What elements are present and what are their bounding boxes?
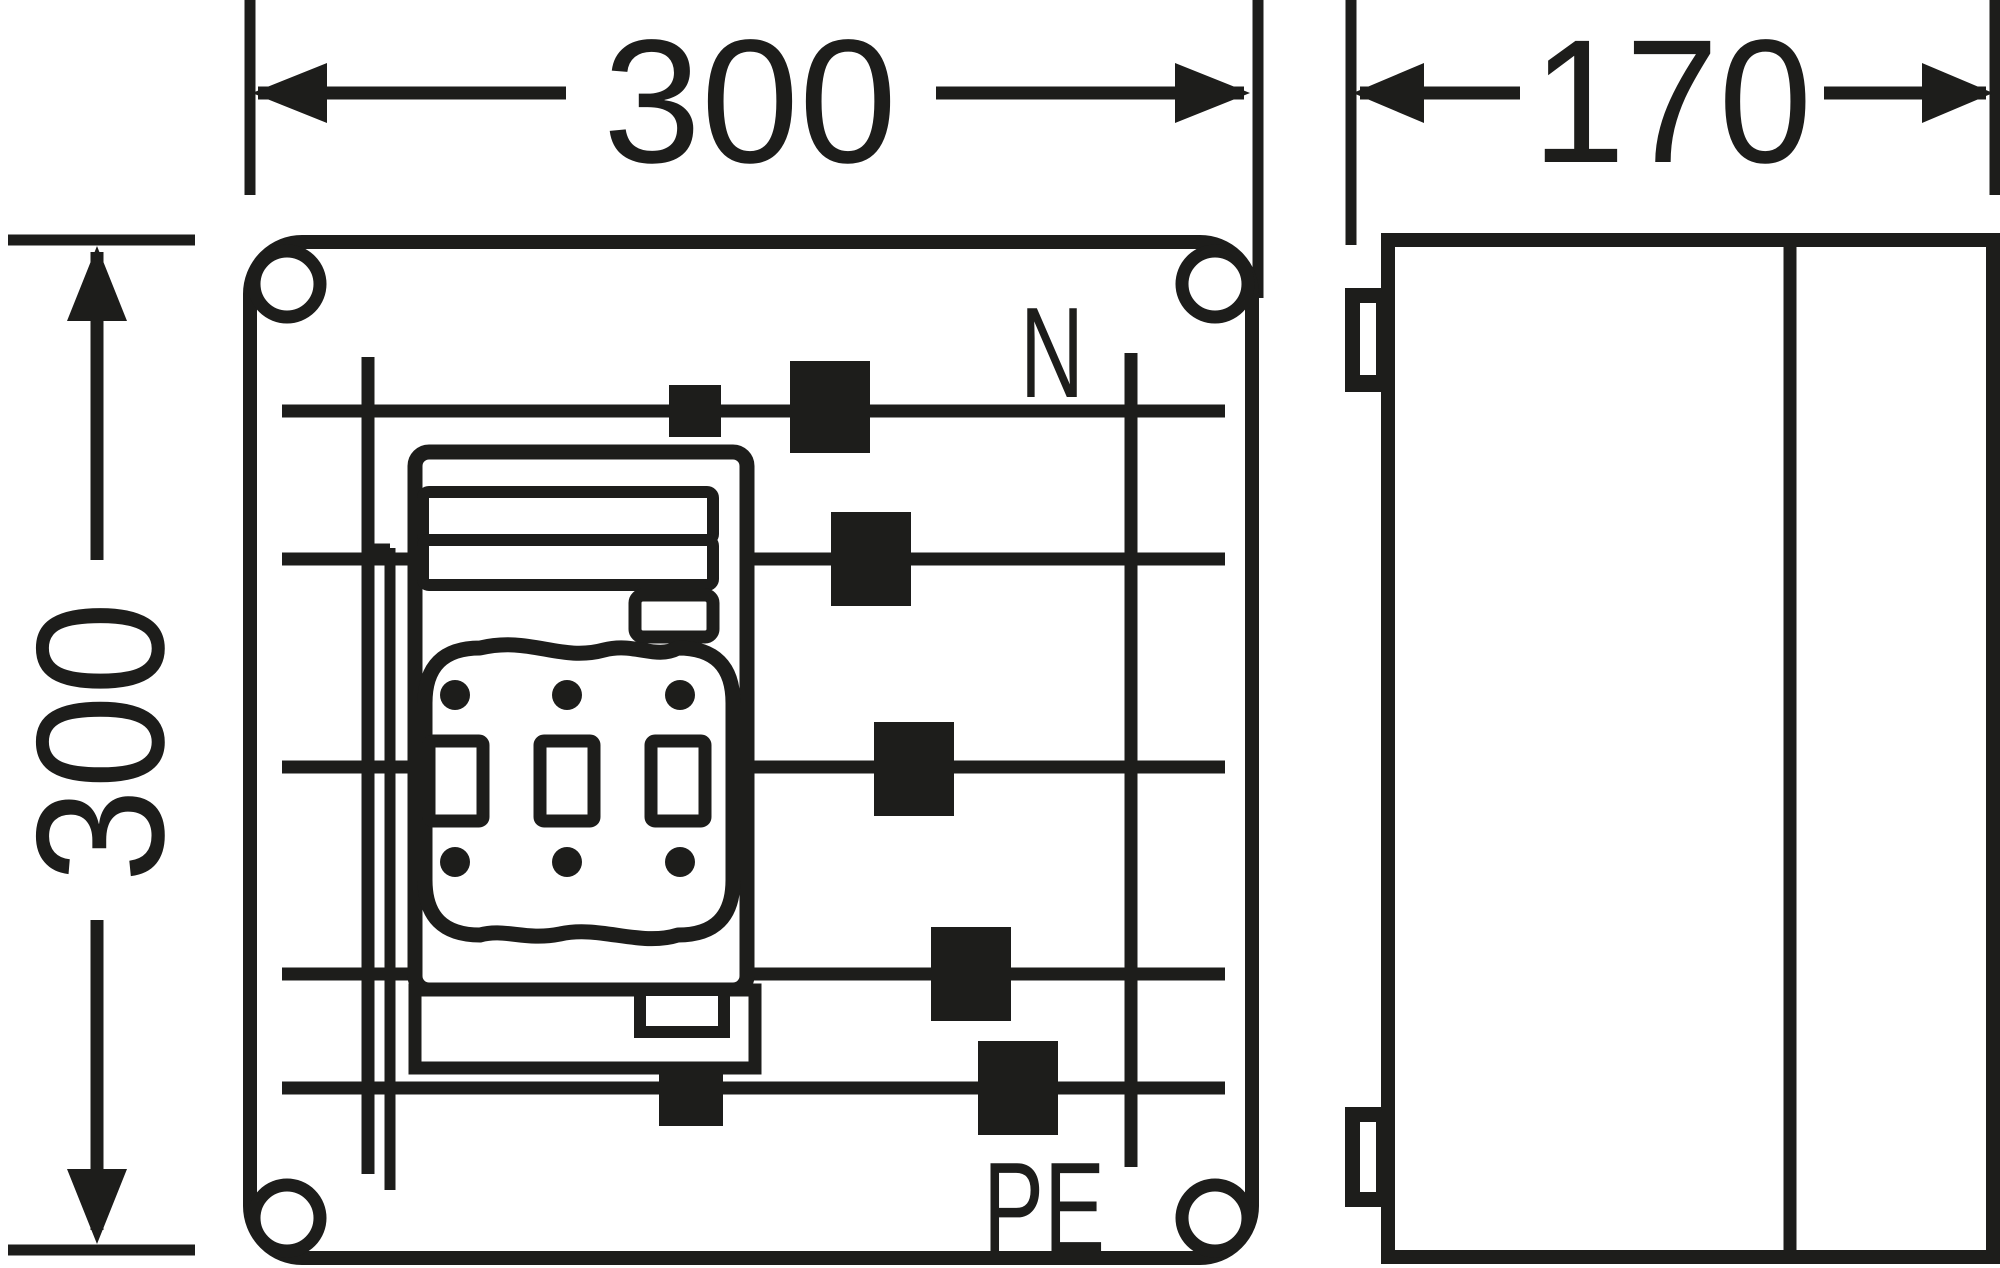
dimension-value-front-height: 300 xyxy=(0,602,202,883)
side-outline xyxy=(1388,240,1993,1257)
arrowhead-left-icon xyxy=(1353,63,1424,123)
terminal-pe xyxy=(978,1041,1058,1135)
technical-drawing: 300 300 170 xyxy=(0,0,2000,1268)
dimension-front-width: 300 xyxy=(250,0,1258,298)
terminal-device-pe xyxy=(659,1066,723,1126)
rating-label-window-bottom xyxy=(423,540,713,585)
screw-hole-icon xyxy=(1182,251,1248,317)
arrowhead-up-icon xyxy=(67,246,127,321)
terminal-n xyxy=(790,361,870,453)
clip-slot xyxy=(1360,1122,1376,1192)
pole-slot xyxy=(429,741,483,821)
terminal-l3 xyxy=(931,927,1011,1021)
indicator-window xyxy=(635,595,713,637)
contact-dot xyxy=(552,847,582,877)
contact-dot xyxy=(440,847,470,877)
arrowhead-right-icon xyxy=(1922,63,1993,123)
drawing-svg: 300 300 170 xyxy=(0,0,2000,1268)
fuse-pole-slots xyxy=(429,741,705,821)
contact-dot xyxy=(552,680,582,710)
pole-slot xyxy=(540,741,594,821)
wall-clip-top xyxy=(1345,288,1387,392)
terminal-cover-latch xyxy=(640,990,724,1032)
dimension-value-side-depth: 170 xyxy=(1532,4,1812,200)
screw-hole-icon xyxy=(254,251,320,317)
arrowhead-right-icon xyxy=(1175,63,1250,123)
label-protective-earth: PE xyxy=(983,1136,1105,1268)
arrowhead-down-icon xyxy=(67,1169,127,1244)
terminal-small-n xyxy=(669,385,721,437)
clip-slot xyxy=(1360,303,1376,375)
fuse-switch-device xyxy=(415,452,755,1068)
screw-hole-icon xyxy=(1182,1185,1248,1251)
arrowhead-left-icon xyxy=(252,63,327,123)
contact-dot xyxy=(665,680,695,710)
side-view xyxy=(1345,240,1993,1257)
contact-dot xyxy=(665,847,695,877)
terminal-l2 xyxy=(874,722,954,816)
wall-clip-bottom xyxy=(1345,1107,1387,1207)
dimension-front-height: 300 xyxy=(0,240,202,1250)
pole-slot xyxy=(651,741,705,821)
dimension-side-depth: 170 xyxy=(1351,0,1995,245)
dimension-value-front-width: 300 xyxy=(603,4,897,200)
contact-dot xyxy=(440,680,470,710)
screw-hole-icon xyxy=(254,1185,320,1251)
front-view: N PE xyxy=(250,242,1252,1268)
terminal-l1 xyxy=(831,512,911,606)
rating-label-window-top xyxy=(423,492,713,540)
label-neutral: N xyxy=(1020,281,1084,425)
